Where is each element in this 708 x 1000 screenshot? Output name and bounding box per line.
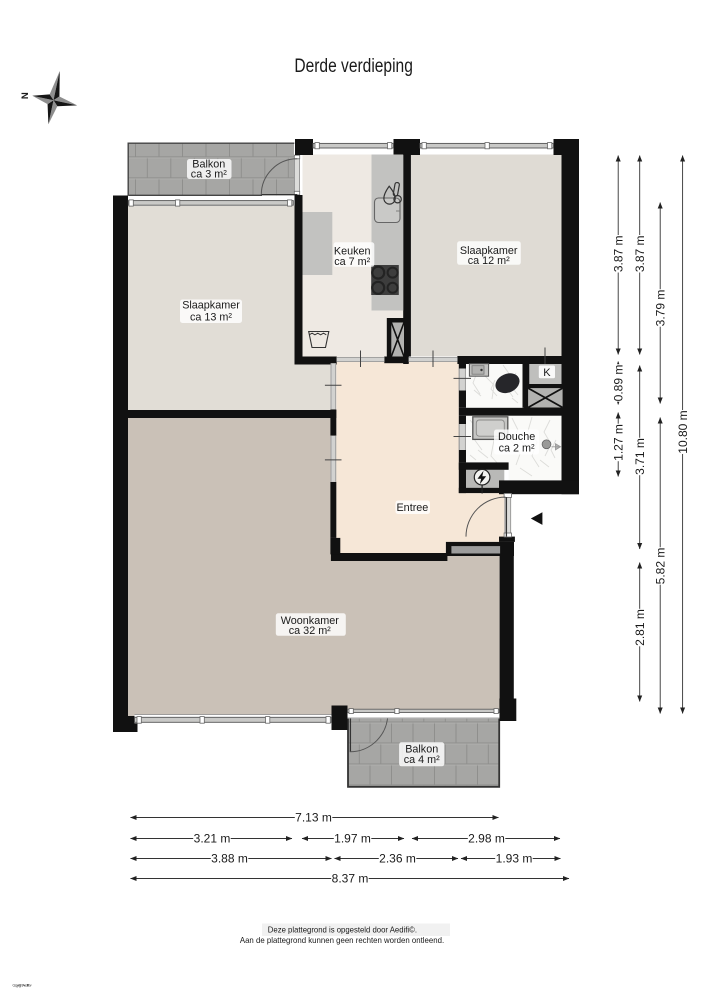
svg-text:ca 13 m²: ca 13 m²	[190, 312, 232, 324]
svg-text:0.89 m: 0.89 m	[611, 365, 625, 402]
svg-text:5.82 m: 5.82 m	[653, 548, 667, 585]
svg-text:Aan de plattegrond kunnen geen: Aan de plattegrond kunnen geen rechten w…	[240, 935, 444, 945]
svg-text:3.79 m: 3.79 m	[653, 290, 667, 327]
svg-text:Derde verdieping: Derde verdieping	[294, 56, 413, 77]
svg-text:Copyright Aedifi bv: Copyright Aedifi bv	[13, 984, 32, 988]
svg-text:ca 3 m²: ca 3 m²	[191, 168, 227, 180]
svg-text:3.87 m: 3.87 m	[611, 235, 625, 272]
svg-text:ca 12 m²: ca 12 m²	[468, 255, 510, 267]
svg-text:2.36 m: 2.36 m	[379, 852, 416, 866]
svg-text:Entree: Entree	[396, 502, 428, 514]
svg-text:8.37 m: 8.37 m	[332, 872, 369, 886]
svg-text:ca 4 m²: ca 4 m²	[404, 754, 440, 766]
svg-text:2.81 m: 2.81 m	[633, 609, 647, 646]
svg-text:3.87 m: 3.87 m	[633, 235, 647, 272]
svg-text:1.93 m: 1.93 m	[496, 852, 533, 866]
svg-text:3.88 m: 3.88 m	[211, 852, 248, 866]
svg-text:1.27 m: 1.27 m	[611, 424, 625, 461]
svg-text:1.97 m: 1.97 m	[334, 832, 371, 846]
svg-text:7.13 m: 7.13 m	[295, 811, 332, 825]
svg-text:Slaapkamer: Slaapkamer	[182, 300, 240, 312]
svg-text:10.80 m: 10.80 m	[676, 410, 690, 453]
svg-text:3.21 m: 3.21 m	[194, 832, 231, 846]
svg-text:N: N	[18, 92, 29, 99]
svg-text:Deze plattegrond is opgesteld: Deze plattegrond is opgesteld door Aedif…	[268, 925, 417, 935]
svg-text:3.71 m: 3.71 m	[633, 438, 647, 475]
svg-text:ca 32 m²: ca 32 m²	[289, 625, 331, 637]
svg-text:K: K	[543, 367, 551, 379]
svg-text:ca 7 m²: ca 7 m²	[334, 256, 370, 268]
svg-text:ca 2 m²: ca 2 m²	[499, 442, 535, 454]
svg-text:Douche: Douche	[498, 431, 535, 443]
svg-text:2.98 m: 2.98 m	[468, 832, 505, 846]
